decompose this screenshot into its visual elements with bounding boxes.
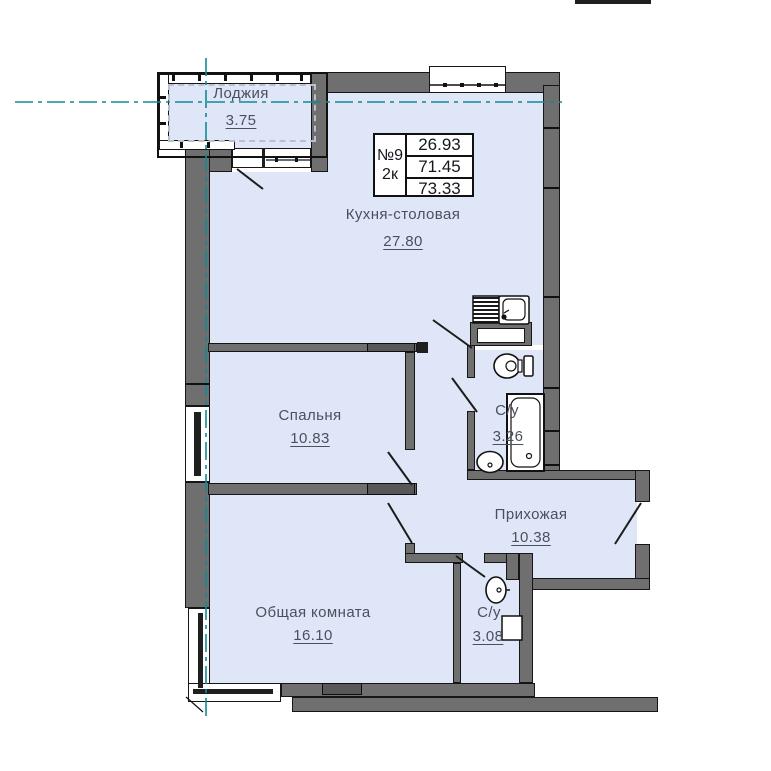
wall-joint-tick	[543, 296, 560, 298]
balcony-window-tick	[275, 158, 278, 162]
door-entry	[615, 503, 641, 544]
room-area-bath2: 3.08	[473, 628, 504, 645]
loggia-tick	[198, 74, 201, 81]
toilet-tank	[524, 356, 533, 376]
loggia-tick	[207, 142, 210, 148]
wall-joint-tick	[185, 383, 210, 385]
wall-joint-tick	[543, 387, 560, 389]
room-label-bath2: С/у	[477, 604, 501, 621]
loggia-tick	[180, 142, 183, 148]
wall-joint-tick	[543, 187, 560, 189]
unit-title-block: №9 2к 26.93 71.45 73.33	[373, 133, 474, 197]
room-area-living: 16.10	[293, 627, 333, 644]
corner-window-miter	[186, 697, 203, 712]
unit-area-1: 26.93	[407, 135, 472, 157]
room-label-bath1: С/у	[495, 402, 519, 419]
kitchen-sink-faucet	[501, 314, 506, 319]
door-bedroom	[388, 452, 412, 485]
room-label-bedroom: Спальня	[278, 407, 341, 424]
unit-area-total: 73.33	[407, 179, 472, 199]
loggia-tick	[172, 74, 175, 81]
balcony-window-tick	[295, 158, 298, 162]
toilet-neck	[518, 360, 522, 372]
door-bath2	[456, 556, 485, 577]
bath1-sink-icon	[477, 452, 503, 473]
room-area-loggia: 3.75	[226, 112, 257, 129]
room-label-loggia: Лоджия	[213, 85, 269, 102]
room-area-hallway: 10.38	[511, 529, 551, 546]
door-bath1	[452, 378, 477, 412]
heater-box-icon	[502, 616, 522, 640]
plan-overlay	[0, 0, 771, 771]
floor-plan-canvas: Лоджия 3.75 Кухня-столовая 27.80 Спальня…	[0, 0, 771, 771]
top-window-tick	[477, 83, 481, 87]
loggia-tick	[276, 74, 279, 81]
room-area-bedroom: 10.83	[290, 430, 330, 447]
unit-id-cell: №9 2к	[375, 135, 407, 195]
unit-type: 2к	[382, 165, 398, 184]
door-living	[388, 503, 412, 543]
wall-joint-tick	[543, 464, 560, 466]
wall-joint-tick	[543, 127, 560, 129]
room-label-living: Общая комната	[255, 604, 370, 621]
top-window-tick	[460, 83, 464, 87]
unit-areas-cell: 26.93 71.45 73.33	[407, 135, 472, 195]
top-window-tick	[494, 83, 498, 87]
stove-icon	[473, 296, 499, 323]
door-balcony	[237, 169, 263, 189]
wall-joint-tick	[543, 430, 560, 432]
loggia-tick	[300, 74, 303, 81]
loggia-tick	[224, 74, 227, 81]
loggia-tick	[159, 122, 166, 125]
room-area-bath1: 3.26	[493, 428, 524, 445]
loggia-tick	[250, 74, 253, 81]
unit-area-2: 71.45	[407, 157, 472, 179]
bath2-sink-icon	[486, 577, 506, 603]
loggia-tick	[159, 96, 166, 99]
door-kitchen	[433, 320, 472, 348]
room-label-kitchen: Кухня-столовая	[346, 206, 460, 223]
unit-number: №9	[377, 146, 403, 165]
room-area-kitchen: 27.80	[383, 233, 423, 250]
top-window-tick	[443, 83, 447, 87]
room-label-hallway: Прихожая	[495, 506, 568, 523]
